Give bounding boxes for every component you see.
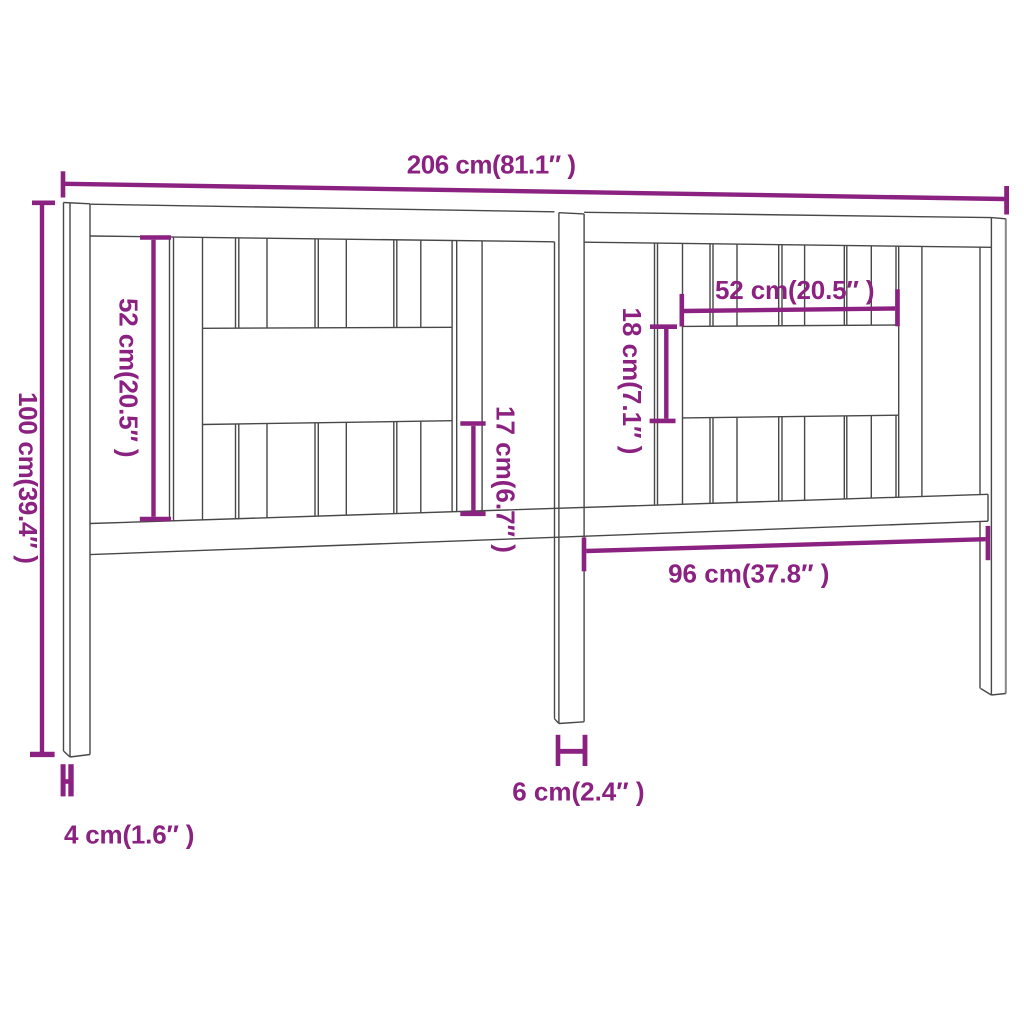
svg-text:52 cm(20.5″ ): 52 cm(20.5″ ) [715, 275, 874, 305]
svg-text:17 cm(6.7″ ): 17 cm(6.7″ ) [491, 406, 521, 553]
svg-text:52 cm(20.5″ ): 52 cm(20.5″ ) [114, 298, 144, 457]
svg-text:6 cm(2.4″ ): 6 cm(2.4″ ) [512, 776, 644, 806]
svg-text:206 cm(81.1″ ): 206 cm(81.1″ ) [407, 149, 576, 179]
svg-text:4 cm(1.6″ ): 4 cm(1.6″ ) [64, 820, 194, 850]
svg-text:18 cm(7.1″ ): 18 cm(7.1″ ) [617, 308, 647, 455]
svg-text:100 cm(39.4″ ): 100 cm(39.4″ ) [13, 392, 43, 564]
svg-text:96 cm(37.8″ ): 96 cm(37.8″ ) [668, 559, 829, 589]
